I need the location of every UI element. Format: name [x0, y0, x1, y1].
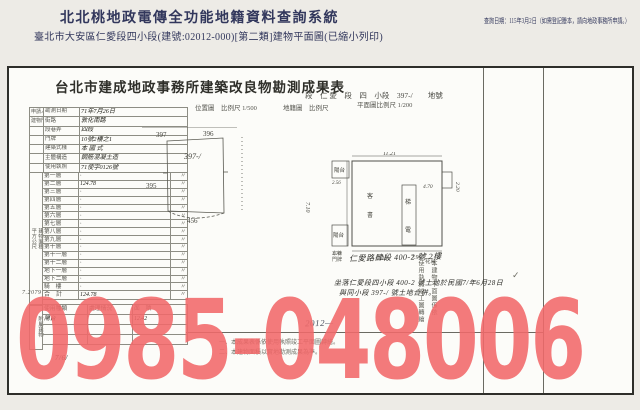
- form-label: 街路: [44, 117, 80, 126]
- floor-label: 第七層: [43, 220, 79, 228]
- balcony-top-label: 陽台: [334, 166, 346, 174]
- lot-395-label: 395: [146, 182, 157, 190]
- form-group-cell: 建物門牌: [30, 117, 44, 126]
- floor-label: 第十一層: [43, 251, 79, 259]
- site-map-scale: 位置圖 比例尺 1/500: [195, 102, 257, 112]
- room-a-label: 客: [367, 192, 373, 200]
- document-subtitle: 臺北市大安區仁愛段四小段(建號:02012-000)[第二類]建物平面圖(已縮小…: [34, 28, 383, 43]
- form-group-cell: [30, 154, 44, 163]
- floor-plan-scale: 平面圖比例尺 1/200: [357, 99, 412, 109]
- floor-label: 第五層: [43, 204, 79, 212]
- lot-397-1-label: 397-/: [183, 152, 202, 161]
- floor-unit-mark: 〃: [171, 244, 188, 252]
- form-label: 建築式樣: [44, 145, 80, 154]
- balcony-top-dim: 2.56: [332, 181, 341, 186]
- form-group-cell: [30, 126, 44, 135]
- form-row: 申請人 姓名 勘測日期 71年7月26日: [30, 108, 188, 117]
- lot-396-label: 396: [203, 130, 214, 138]
- form-value: 71年7月26日: [80, 108, 188, 117]
- floor-row: 第十層 · 〃: [43, 244, 188, 252]
- dim-notch-h: 4.70: [423, 183, 433, 190]
- floor-area-value: ·: [79, 251, 171, 259]
- area-group-bottom: 平方公尺: [30, 228, 35, 249]
- form-label: 段巷弄: [44, 126, 80, 135]
- floor-area-value: ·: [79, 244, 171, 252]
- lot-397-label: 397: [156, 131, 167, 139]
- floor-label: 第八層: [43, 228, 79, 236]
- balcony-bottom-label: 陽台: [333, 231, 345, 239]
- form-title: 台北市建成地政事務所建築改良物勘測成果表: [55, 76, 345, 96]
- floor-label: 第三層: [43, 188, 79, 196]
- address-note-label: 本棟 門牌: [332, 252, 344, 263]
- floor-plan-sketch: 11.21 7.10 7.10 7.90 2.20 4.70 陽台 2.56 陽…: [299, 152, 489, 264]
- lot-456-label: 456: [187, 217, 198, 225]
- floor-label: 第十層: [43, 244, 79, 252]
- cadastre-map-scale: 地籍圖 比例尺: [283, 102, 329, 112]
- form-label: 門牌: [44, 135, 80, 144]
- floor-unit-mark: 〃: [171, 251, 188, 259]
- floor-label: 第六層: [43, 212, 79, 220]
- query-date-note: 查詢日期：115年3月2日（如需登記謄本，請向地政事務所申請。）: [484, 16, 630, 26]
- floor-label: 地下一層: [43, 267, 79, 275]
- floor-label: 第九層: [43, 236, 79, 244]
- form-value: 敦化南路: [80, 117, 188, 126]
- shaft-bottom-label: 電: [405, 227, 411, 234]
- form-group-cell: 申請人 姓名: [30, 108, 44, 117]
- form-group-cell: [30, 135, 44, 144]
- floor-label: 第十二層: [43, 259, 79, 267]
- floor-row: 第十一層 · 〃: [43, 251, 188, 259]
- floor-row: 第十二層 · 〃: [43, 259, 188, 267]
- floor-label: 第二層: [43, 180, 79, 188]
- query-system-page: 北北桃地政電傳全功能地籍資料查詢系統 查詢日期：115年3月2日（如需登記謄本，…: [0, 0, 640, 410]
- form-row: 建物門牌 街路 敦化南路: [30, 117, 188, 126]
- room-b-label: 書: [367, 211, 373, 219]
- floor-area-value: ·: [79, 259, 171, 267]
- floor-area-value: ·: [79, 267, 171, 275]
- dim-top: 11.21: [383, 152, 396, 157]
- form-label: 勘測日期: [44, 108, 80, 117]
- form-group-cell: [30, 145, 44, 154]
- phone-number-watermark: 0985-048006: [16, 285, 584, 395]
- floor-unit-mark: 〃: [171, 267, 188, 275]
- site-plan-sketch: 397 396 397-/ 395 456: [142, 127, 274, 239]
- floor-label: 第一層: [43, 173, 79, 181]
- floor-row: 地下一層 · 〃: [43, 267, 188, 275]
- form-label: 主體構造: [44, 154, 80, 163]
- floor-label: 第四層: [43, 196, 79, 204]
- shaft-top-label: 梯: [405, 198, 411, 206]
- dim-notch-v: 2.20: [454, 182, 460, 192]
- floor-unit-mark: 〃: [171, 259, 188, 267]
- system-title: 北北桃地政電傳全功能地籍資料查詢系統: [60, 7, 339, 27]
- dim-left: 7.10: [304, 202, 310, 213]
